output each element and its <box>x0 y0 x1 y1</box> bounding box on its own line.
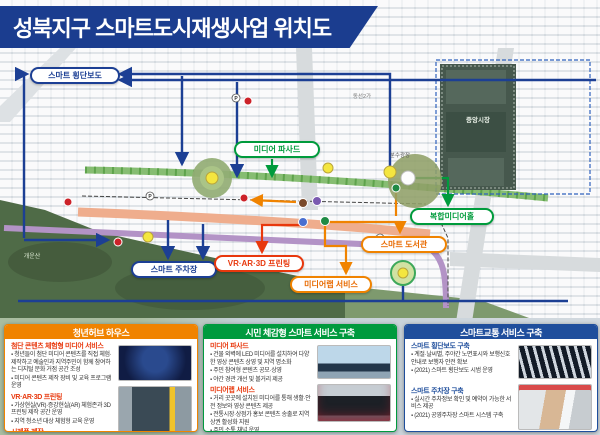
street-label: 동선2가 <box>353 92 371 100</box>
parking-app-photo <box>518 384 592 430</box>
section: VR·AR·3D 프린팅 가상현실(VR)·증강현실(AR) 체험존과 3D 프… <box>11 394 114 427</box>
title-banner: 성북지구 스마트도시재생사업 위치도 <box>0 6 378 48</box>
section: 첨단 콘텐츠 체험형 미디어 서비스 청년들이 첨단 미디어 콘텐츠를 직접 체… <box>11 343 114 391</box>
callout-media-hall: 복합미디어홀 <box>410 208 494 225</box>
section: 미디어 파사드 건물 외벽에 LED 미디어를 설치하여 다양한 영상 콘텐츠 … <box>210 343 313 384</box>
panel-youth-hub-title: 청년허브 하우스 <box>5 325 197 339</box>
bullet-item: 주민 참여형 콘텐츠 공모·상영 <box>210 368 313 376</box>
section-heading: 시제품 제작 <box>11 429 114 432</box>
map-linework: P P P 동선2가 중앙시장 분수광장 개운산 <box>0 0 600 322</box>
night-crosswalk-photo <box>518 345 592 379</box>
bullet-item: 야간 경관 개선 및 볼거리 제공 <box>210 377 313 385</box>
bullet-item: 지역 청소년 대상 체험형 교육 운영 <box>11 419 114 427</box>
section-heading: 첨단 콘텐츠 체험형 미디어 서비스 <box>11 343 114 351</box>
bullet-item: 전통시장·상점가 홍보 콘텐츠 송출로 지역 상권 활성화 지원 <box>210 412 313 427</box>
bullet-item: (2021) 공영주차장 스마트 시스템 구축 <box>411 413 514 421</box>
bullet-item: 미디어 콘텐츠 제작 장비 및 교육 프로그램 운영 <box>11 376 114 391</box>
bullet-item: 가상현실(VR)·증강현실(AR) 체험존과 3D 프린팅 제작 공간 운영 <box>11 403 114 418</box>
market-label: 중앙시장 <box>466 115 490 124</box>
callout-smart-crosswalk: 스마트 횡단보도 <box>30 67 120 84</box>
callout-smart-library: 스마트 도서관 <box>361 236 447 253</box>
section: 미디어랩 서비스 거리 곳곳에 설치된 미디어를 통해 생활·안전 정보와 영상… <box>210 387 313 432</box>
bullet-item: (2021) 스마트 횡단보도 시범 운영 <box>411 368 514 376</box>
bullet-item: 주민 소통 채널 운영 <box>210 428 313 432</box>
panel-smart-transport: 스마트교통 서비스 구축 스마트 횡단보도 구축 계절·날씨별, 주야간 노면표… <box>404 324 598 432</box>
bullet-item: 건물 외벽에 LED 미디어를 설치하여 다양한 영상 콘텐츠 상영 및 지역 … <box>210 352 313 367</box>
node-southeast <box>391 261 415 285</box>
led-billboard-photo <box>317 384 391 422</box>
smart-kiosk-photo <box>118 386 192 432</box>
media-pavilion-photo <box>317 345 391 379</box>
panel-citizen-title: 시민 체감형 스마트 서비스 구축 <box>204 325 396 339</box>
bullet-item: 청년들이 첨단 미디어 콘텐츠를 직접 체험·제작하고 예술인과 지역주민이 함… <box>11 352 114 375</box>
section-heading: 스마트 횡단보도 구축 <box>411 343 514 351</box>
location-map-poster: P P P 동선2가 중앙시장 분수광장 개운산 성북지구 스마트도시재생사업 … <box>0 0 600 435</box>
callout-vr-ar-3d: VR·AR·3D 프린팅 <box>214 255 304 272</box>
panel-youth-hub-house: 청년허브 하우스 첨단 콘텐츠 체험형 미디어 서비스 청년들이 첨단 미디어 … <box>4 324 198 432</box>
page-title: 성북지구 스마트도시재생사업 위치도 <box>0 11 331 43</box>
section-heading: 미디어 파사드 <box>210 343 313 351</box>
park-label: 개운산 <box>24 252 41 260</box>
panel-citizen-smart-services: 시민 체감형 스마트 서비스 구축 미디어 파사드 건물 외벽에 LED 미디어… <box>203 324 397 432</box>
plaza-label: 분수광장 <box>390 152 410 159</box>
market-satellite-patch <box>440 64 516 190</box>
section-heading: 미디어랩 서비스 <box>210 387 313 395</box>
callout-media-lab: 미디어랩 서비스 <box>290 276 372 293</box>
roundabout-node-west <box>192 158 232 198</box>
section: 스마트 횡단보도 구축 계절·날씨별, 주야간 노면표시와 보행신호 안내로 보… <box>411 343 514 376</box>
section: 시제품 제작 청년 창업가의 시제품 제작·전시·판매를 지원하는 메이커 공간… <box>11 429 114 432</box>
bullet-item: 실시간 주차정보 확인 및 예약이 가능한 서비스 제공 <box>411 397 514 412</box>
panel-transport-title: 스마트교통 서비스 구축 <box>405 325 597 339</box>
section: 스마트 주차장 구축 실시간 주차정보 확인 및 예약이 가능한 서비스 제공 … <box>411 388 514 421</box>
vr-experience-photo <box>118 345 192 381</box>
callout-smart-parking: 스마트 주차장 <box>131 261 217 278</box>
bullet-item: 거리 곳곳에 설치된 미디어를 통해 생활·안전 정보와 영상 콘텐츠 제공 <box>210 396 313 411</box>
roundabout-node-east <box>384 154 442 208</box>
callout-media-facade: 미디어 파사드 <box>234 141 320 158</box>
bullet-item: 계절·날씨별, 주야간 노면표시와 보행신호 안내로 보행자 안전 확보 <box>411 352 514 367</box>
section-heading: VR·AR·3D 프린팅 <box>11 394 114 402</box>
section-heading: 스마트 주차장 구축 <box>411 388 514 396</box>
